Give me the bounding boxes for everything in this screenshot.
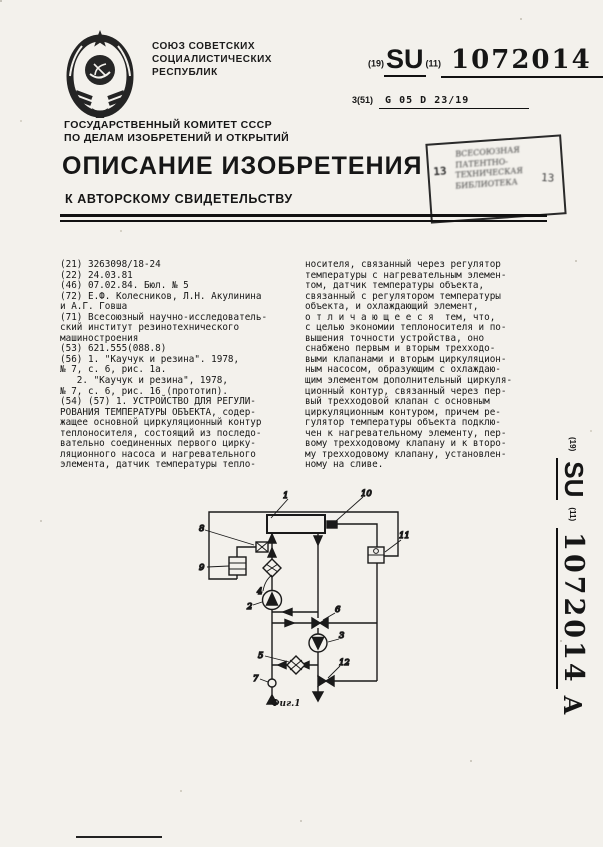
figure-label-object: 1	[283, 491, 288, 501]
union-line: СОЮЗ СОВЕТСКИХ	[152, 40, 272, 53]
flow-arrow-up	[268, 534, 276, 543]
union-line: СОЦИАЛИСТИЧЕСКИХ	[152, 53, 272, 66]
figure-label-pump1: 2	[246, 602, 252, 612]
figure-label-pump2: 3	[339, 631, 344, 641]
sidebar-number: 1072014	[557, 528, 590, 689]
object-regulator-dial	[374, 549, 379, 554]
label-leader	[323, 613, 335, 620]
label-leader	[263, 575, 272, 591]
label-leader	[205, 530, 254, 545]
number-text: 1072014	[451, 45, 592, 75]
drain-arrow	[313, 692, 323, 701]
code-19: (19)	[368, 59, 384, 69]
sidebar-code-19: (19)	[569, 437, 578, 451]
text-line: щим элементом дополнительный циркуля-	[305, 376, 512, 387]
object-sensor-symbol	[327, 521, 337, 528]
country-code: SU	[384, 44, 426, 77]
patent-page: { "header": { "union_lines": ["СОЮЗ СОВЕ…	[0, 0, 603, 847]
flow-arrow-down	[314, 536, 322, 545]
state-committee: ГОСУДАРСТВЕННЫЙ КОМИТЕТ СССР ПО ДЕЛАМ ИЗ…	[64, 119, 289, 145]
ipc-prefix: 3(51)	[352, 95, 373, 105]
code-11: (11)	[426, 59, 442, 69]
sidebar-country-code: SU	[557, 458, 590, 500]
text-column-left: (21) 3263098/18-24(22) 24.03.81(46) 07.0…	[60, 260, 267, 471]
stamp-digit-left: 13	[433, 166, 447, 177]
figure-label-makeup-valve: 7	[253, 674, 259, 684]
label-leader	[207, 566, 229, 567]
label-leader	[253, 602, 262, 605]
document-title: ОПИСАНИЕ ИЗОБРЕТЕНИЯ	[62, 152, 423, 181]
figure-1-schematic: 1 10 11 4 8 9 2 6 3	[195, 488, 415, 720]
figure-label-coolant-regulator: 9	[199, 563, 205, 573]
sidebar-kind-code: A	[559, 696, 588, 715]
figure-label-cooler: 5	[258, 651, 263, 661]
text-line: элемента, датчик температуры тепло-	[60, 460, 267, 471]
sidebar-publication-number: (19) SU (11) 1072014 A	[545, 437, 601, 717]
text-line: ному на сливе.	[305, 460, 512, 471]
flow-arrow-right	[285, 620, 294, 627]
makeup-valve-symbol	[268, 679, 276, 687]
document-subtitle: К АВТОРСКОМУ СВИДЕТЕЛЬСТВУ	[65, 192, 293, 206]
paper-noise	[0, 0, 2, 2]
sensor-to-regulator-wire	[337, 524, 377, 547]
figure-caption: Фиг.1	[271, 699, 301, 709]
label-leader	[260, 679, 268, 682]
stamp-text: ВСЕСОЮЗНАЯ ПАТЕНТНО- ТЕХНИЧЕСКАЯ БИБЛИОТ…	[455, 145, 523, 192]
union-name: СОЮЗ СОВЕТСКИХ СОЦИАЛИСТИЧЕСКИХ РЕСПУБЛИ…	[152, 40, 272, 79]
committee-line: ПО ДЕЛАМ ИЗОБРЕТЕНИЙ И ОТКРЫТИЙ	[64, 132, 289, 145]
ipc-code: G 05 D 23/19	[379, 95, 529, 109]
separator-rule-top	[60, 214, 547, 217]
text-line: (21) 3263098/18-24	[60, 260, 267, 271]
union-line: РЕСПУБЛИК	[152, 66, 272, 79]
figure-label-valve1: 6	[335, 605, 341, 615]
text-line: 2. "Каучук и резина", 1978,	[60, 376, 267, 387]
figure-label-valve2: 12	[339, 658, 350, 668]
flow-arrow-left	[278, 662, 286, 669]
ussr-emblem-graphic	[62, 28, 138, 120]
ipc-classification: 3(51) G 05 D 23/19	[352, 95, 529, 109]
valve2-symbol	[326, 676, 334, 686]
coolant-regulator-box	[229, 557, 246, 575]
publication-number: (19)SU(11)1072014 A	[368, 44, 603, 75]
sensor8-wire	[237, 547, 256, 557]
sidebar-code-11: (11)	[569, 507, 578, 521]
committee-line: ГОСУДАРСТВЕННЫЙ КОМИТЕТ СССР	[64, 119, 289, 132]
figure-label-coolant-sensor: 8	[199, 524, 205, 534]
object-box	[267, 515, 325, 533]
document-number: 1072014 A	[441, 45, 603, 78]
ussr-emblem	[62, 28, 138, 124]
flow-arrow-left	[283, 609, 292, 616]
text-line: носителя, связанный через регулятор	[305, 260, 512, 271]
text-column-right: носителя, связанный через регулятортемпе…	[305, 260, 512, 471]
stamp-digit-right: 13	[540, 171, 554, 185]
label-leader	[328, 639, 339, 642]
label-leader	[265, 656, 289, 662]
figure-label-heater: 4	[256, 587, 262, 597]
bottom-mark	[76, 836, 162, 838]
flow-arrow-up	[268, 548, 276, 557]
figure-label-object-regulator: 11	[399, 531, 410, 541]
label-leader	[336, 497, 363, 521]
separator-rule-bottom	[60, 220, 547, 222]
figure-label-object-sensor: 10	[361, 489, 372, 499]
schematic-drawing: 1 10 11 4 8 9 2 6 3	[195, 488, 415, 716]
library-stamp: ВСЕСОЮЗНАЯ ПАТЕНТНО- ТЕХНИЧЕСКАЯ БИБЛИОТ…	[425, 134, 566, 223]
